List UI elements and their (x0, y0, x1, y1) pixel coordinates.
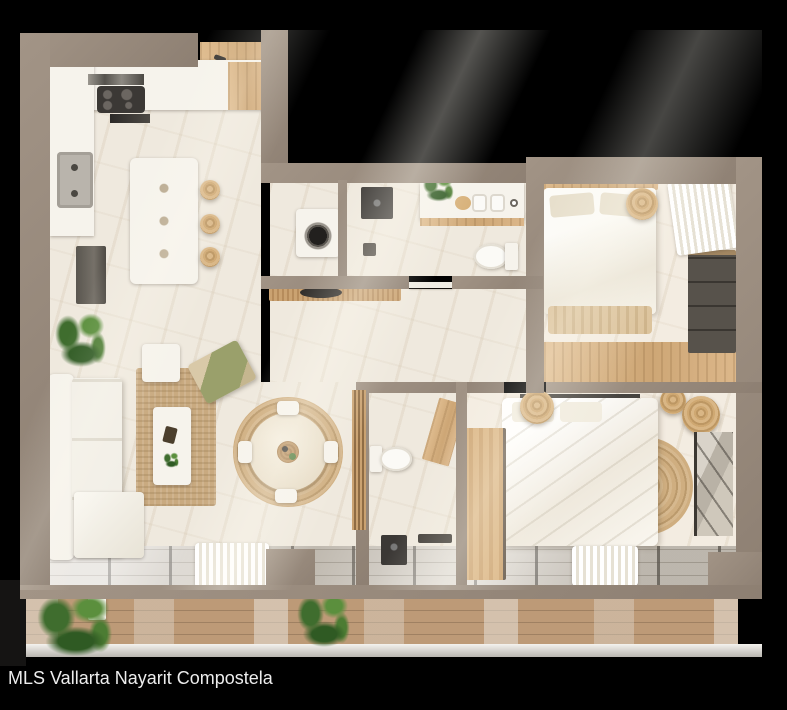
wall-bedroom1-top (526, 157, 762, 184)
curtain-living (195, 543, 269, 588)
coffee-table (153, 407, 191, 485)
wall-kitchen-right (261, 30, 288, 183)
kitchen-island (130, 158, 198, 284)
balcony-deck (24, 597, 738, 647)
bed2-pillow-right (560, 402, 602, 422)
wall-bathroom1-bottom-right (452, 276, 543, 289)
washing-machine-icon (296, 209, 340, 257)
bedroom2-rattan-pendant-large (682, 396, 720, 434)
sofa-chaise (74, 492, 144, 558)
hallway-floor (270, 289, 526, 382)
vanity-sink-icon (472, 194, 487, 212)
table-centerpiece-tray (277, 441, 299, 463)
bed1-pillow-left (549, 192, 595, 218)
vanity-soap-dish (510, 199, 518, 207)
balcony-plant-left (30, 588, 118, 662)
bed1-bench (548, 306, 652, 334)
wall-bedroom2-top-left (356, 382, 504, 393)
kitchen-corner-wood-cabinet (228, 62, 265, 110)
dining-chair-south (275, 489, 297, 503)
bedroom2-wardrobe (463, 428, 506, 580)
bar-stool-3 (200, 247, 220, 267)
watermark-caption: MLS Vallarta Nayarit Compostela (8, 668, 273, 690)
dining-chair-west (238, 441, 252, 463)
vanity-sink-2-icon (490, 194, 505, 212)
bathroom1-door-leaf (409, 282, 452, 288)
bedroom1-curtain-folds (667, 174, 739, 256)
wall-balcony-lintel (20, 585, 762, 599)
sofa-backrest (48, 374, 74, 560)
sink-drain-2 (71, 190, 78, 197)
wall-bedroom1-left (526, 157, 544, 393)
bar-stool-1 (200, 180, 220, 200)
tall-oven-column (76, 246, 106, 304)
toilet-bowl-2-icon (380, 447, 412, 471)
toilet-tank-1 (505, 243, 518, 270)
bedroom2-rattan-stool-left (520, 390, 554, 424)
bedroom2-window-media-panel (694, 432, 733, 536)
range-hood-icon (88, 74, 144, 85)
bath-mat-dark (418, 534, 452, 543)
cooktop-icon (97, 86, 145, 113)
wall-right-outer (736, 157, 762, 595)
centerpiece-item-green (289, 453, 296, 460)
dining-chair-east (324, 441, 338, 463)
shower-drain-icon (363, 243, 376, 256)
shower-fixture-icon (361, 187, 393, 219)
built-in-oven-front (110, 114, 150, 123)
kitchen-counter-left-run (50, 60, 94, 236)
bar-stool-2 (200, 214, 220, 234)
living-corner-plant (50, 308, 110, 372)
wall-laundry-divider (338, 180, 347, 278)
centerpiece-item-dark (282, 446, 288, 452)
bedroom1-wardrobe (688, 250, 736, 353)
dining-table (249, 413, 327, 491)
kitchen-sink-icon (57, 152, 93, 208)
slatted-screen-partition (352, 390, 366, 530)
armchair (142, 344, 180, 382)
floor-plan-render: MLS Vallarta Nayarit Compostela (0, 0, 787, 710)
bedroom1-rattan-pendant (626, 188, 658, 220)
table-plant-icon (162, 451, 180, 469)
wall-bedroom2-top-right (546, 382, 762, 393)
wall-left-outer (20, 33, 50, 589)
wall-middle-top (261, 163, 543, 183)
vanity-tray (455, 196, 471, 210)
dining-chair-north (277, 401, 299, 415)
toilet-bowl-1-icon (474, 244, 508, 269)
wall-bathroom2-right (456, 382, 467, 590)
vanity-wood-edge (420, 218, 524, 226)
book-icon (162, 426, 178, 444)
wall-bathroom1-bottom-left (261, 276, 409, 289)
curtain-bedroom2 (572, 546, 638, 586)
balcony-railing-edge (14, 644, 762, 657)
shower-fixture-2-icon (381, 535, 407, 565)
sink-drain-1 (71, 164, 78, 171)
